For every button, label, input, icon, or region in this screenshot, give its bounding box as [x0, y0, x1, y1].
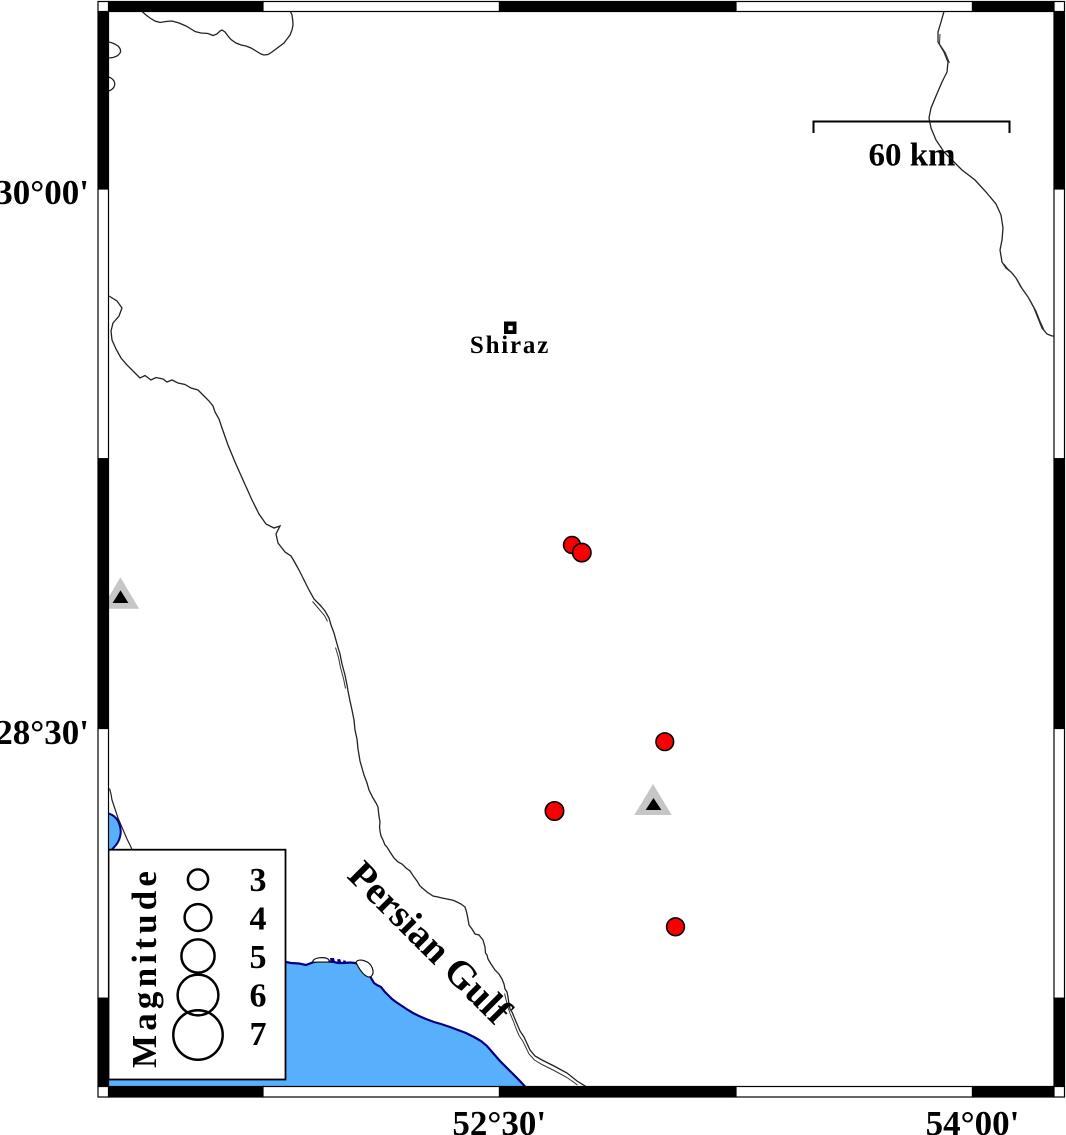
svg-text:30°00': 30°00'	[0, 173, 89, 212]
svg-text:54°00': 54°00'	[926, 1104, 1020, 1135]
svg-text:28°30': 28°30'	[0, 713, 89, 752]
svg-text:5: 5	[250, 939, 267, 976]
svg-text:Shiraz: Shiraz	[470, 332, 550, 359]
svg-text:4: 4	[250, 901, 267, 938]
svg-text:Magnitude: Magnitude	[125, 867, 164, 1068]
svg-text:3: 3	[250, 862, 267, 899]
svg-text:7: 7	[250, 1016, 267, 1053]
svg-text:60 km: 60 km	[868, 138, 955, 174]
svg-text:52°30': 52°30'	[452, 1104, 546, 1135]
svg-text:6: 6	[250, 978, 267, 1015]
